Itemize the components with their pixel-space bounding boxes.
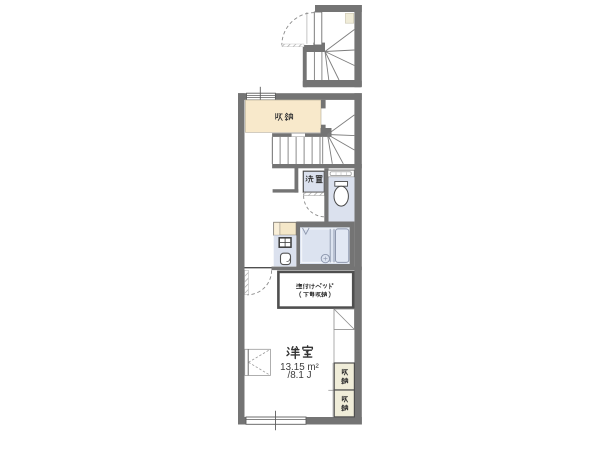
svg-text:/8.1 J: /8.1 J <box>288 370 312 381</box>
